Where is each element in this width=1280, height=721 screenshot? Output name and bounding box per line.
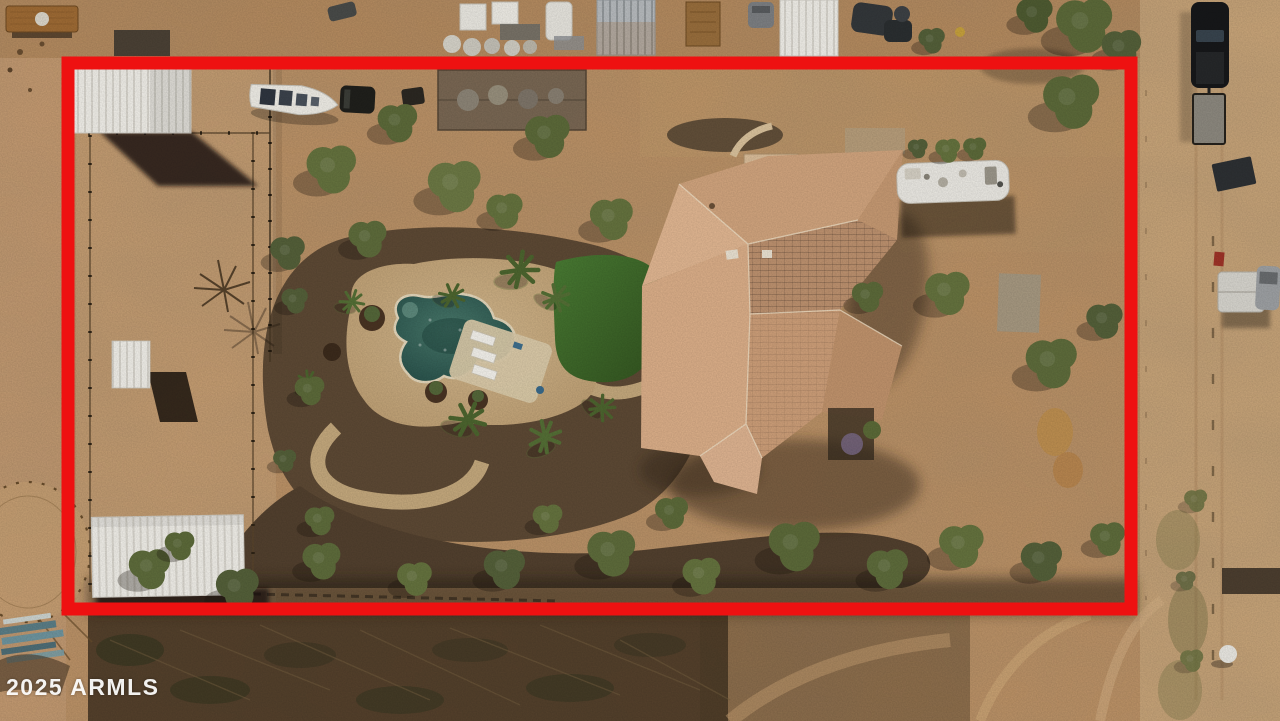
aerial-photo: 2025 ARMLS (0, 0, 1280, 721)
mls-watermark: 2025 ARMLS (6, 674, 159, 701)
